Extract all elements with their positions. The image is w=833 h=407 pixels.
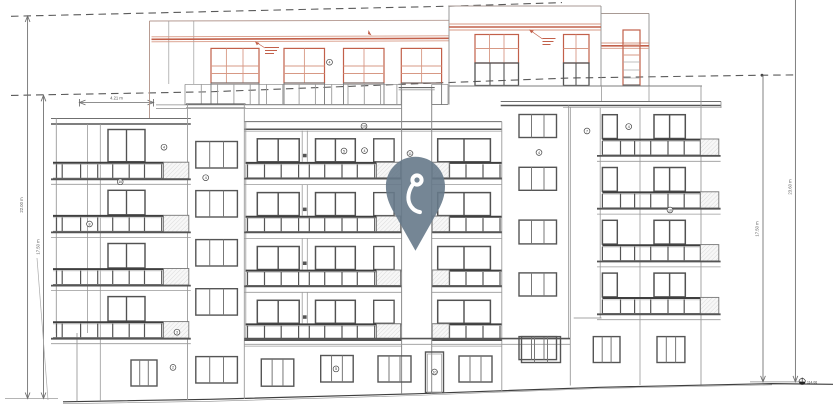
svg-text:11: 11 xyxy=(408,152,412,156)
svg-text:10: 10 xyxy=(433,370,437,374)
svg-text:4: 4 xyxy=(329,61,331,65)
svg-text:2: 2 xyxy=(172,366,174,370)
svg-text:17.50 m: 17.50 m xyxy=(755,221,760,237)
svg-text:4.21 m: 4.21 m xyxy=(110,96,123,101)
svg-text:4: 4 xyxy=(163,146,165,150)
svg-text:5: 5 xyxy=(335,367,337,371)
svg-text:22.00 m: 22.00 m xyxy=(19,197,24,213)
svg-text:4: 4 xyxy=(538,151,540,155)
svg-text:10: 10 xyxy=(362,125,366,129)
svg-text:17.50 m: 17.50 m xyxy=(36,239,41,255)
svg-text:3: 3 xyxy=(176,331,178,335)
svg-text:8: 8 xyxy=(89,222,91,226)
svg-text:23.60 m: 23.60 m xyxy=(788,179,793,195)
svg-text:4: 4 xyxy=(205,176,207,180)
svg-text:114.06: 114.06 xyxy=(807,381,817,385)
svg-text:4: 4 xyxy=(364,149,366,153)
svg-text:7: 7 xyxy=(586,129,588,133)
svg-text:10: 10 xyxy=(118,180,122,184)
svg-text:10: 10 xyxy=(668,208,672,212)
svg-text:4: 4 xyxy=(628,125,630,129)
svg-text:5: 5 xyxy=(343,149,345,153)
